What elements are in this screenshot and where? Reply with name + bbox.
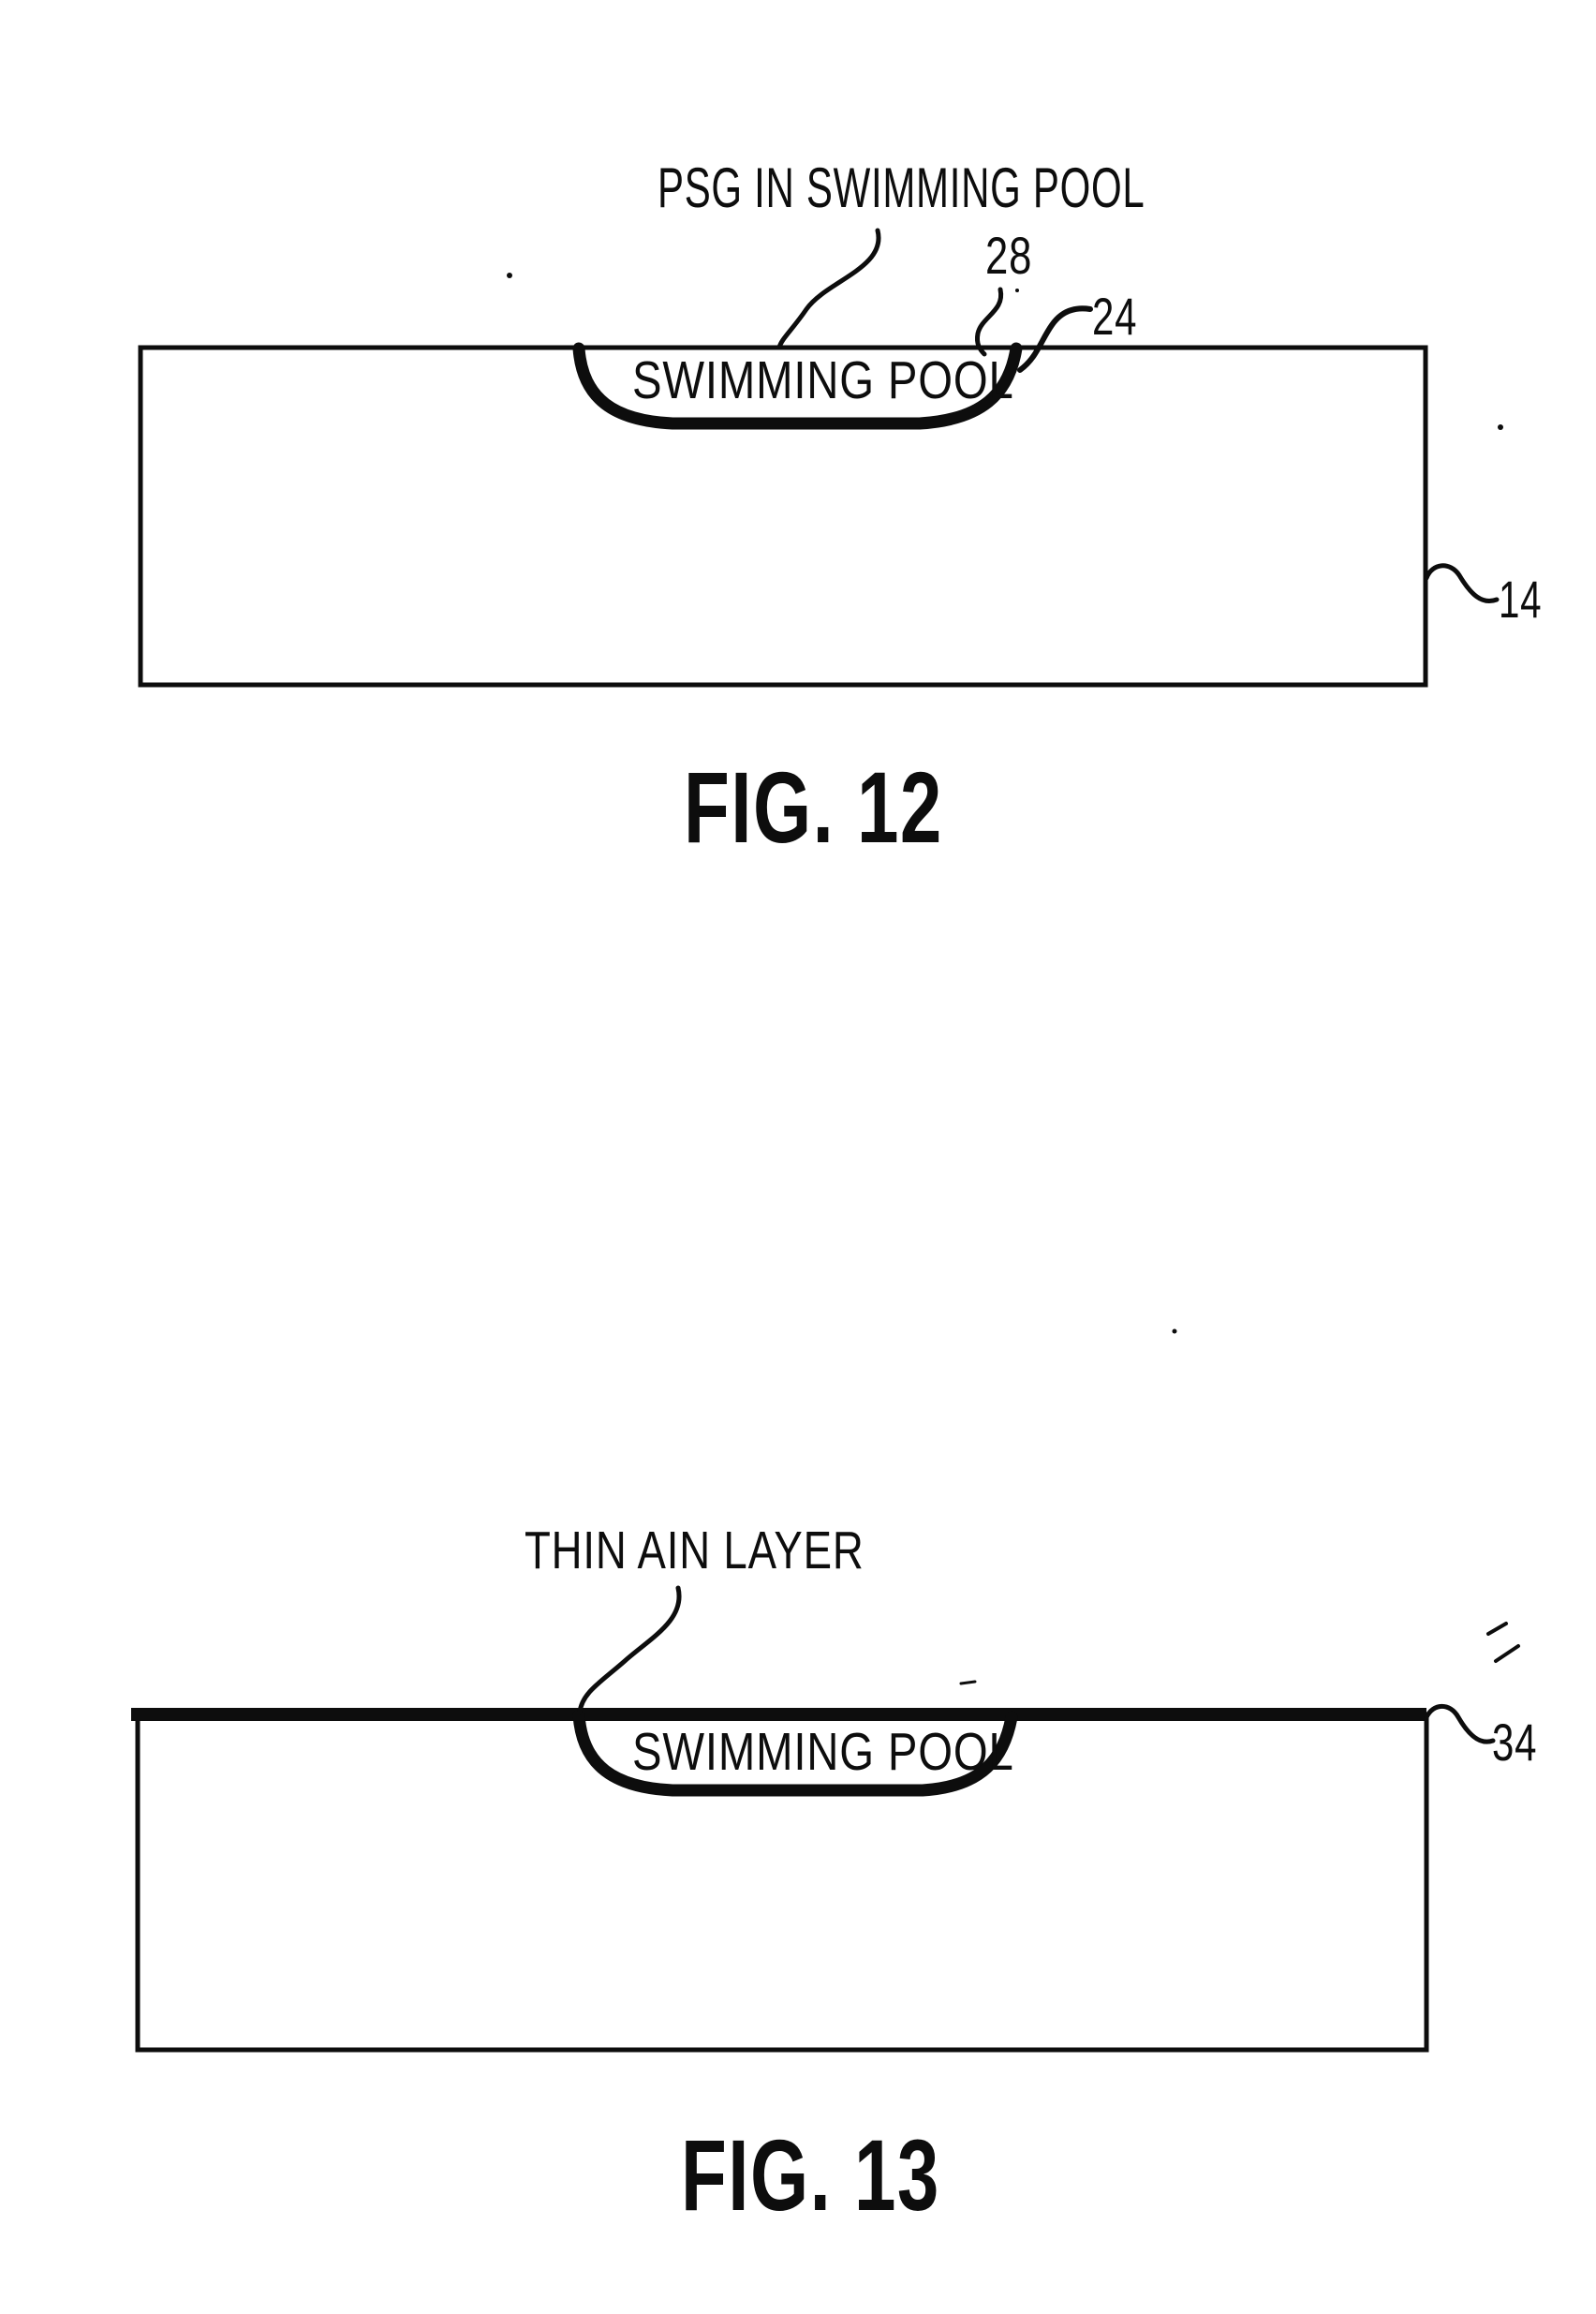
- patent-drawing-page: PSG IN SWIMMING POOL 28 24 SWIMMING POOL…: [0, 0, 1596, 2314]
- fig12-drawing: [140, 230, 1503, 685]
- scan-artifact-slash: [1488, 1624, 1506, 1634]
- fig12-ref-number-14: 14: [1499, 573, 1542, 626]
- fig12-annotation-psg-in-swimming-pool: PSG IN SWIMMING POOL: [658, 160, 1145, 216]
- fig12-ref28-leader-line: [977, 289, 1000, 354]
- fig12-ref14-leader-line: [1426, 566, 1497, 601]
- fig12-swimming-pool-label: SWIMMING POOL: [632, 354, 1014, 408]
- scan-artifact-slash: [1496, 1646, 1518, 1661]
- fig13-caption: FIG. 13: [681, 2125, 940, 2226]
- fig13-ref34-leader-line: [1426, 1706, 1493, 1742]
- fig13-annotation-thin-ain-layer: THIN AIN LAYER: [525, 1524, 864, 1578]
- fig12-ref-number-28: 28: [985, 230, 1032, 282]
- scan-artifact-dot: [507, 273, 512, 278]
- fig13-drawing: [131, 1329, 1518, 2051]
- scan-artifact-dot: [1498, 424, 1503, 430]
- fig13-ref-number-34: 34: [1492, 1716, 1537, 1769]
- scan-artifact-dot: [1015, 289, 1019, 292]
- fig13-swimming-pool-label: SWIMMING POOL: [632, 1726, 1014, 1779]
- fig12-caption: FIG. 12: [684, 757, 943, 858]
- fig12-psg-leader-line: [779, 230, 879, 348]
- scan-artifact-dash: [961, 1682, 975, 1684]
- fig12-ref-number-24: 24: [1092, 290, 1137, 343]
- fig12-ref24-leader-line: [1020, 308, 1090, 370]
- figure-line-art: [0, 0, 1596, 2314]
- fig13-thin-ain-leader-line: [580, 1588, 679, 1713]
- scan-artifact-dot: [1173, 1329, 1177, 1334]
